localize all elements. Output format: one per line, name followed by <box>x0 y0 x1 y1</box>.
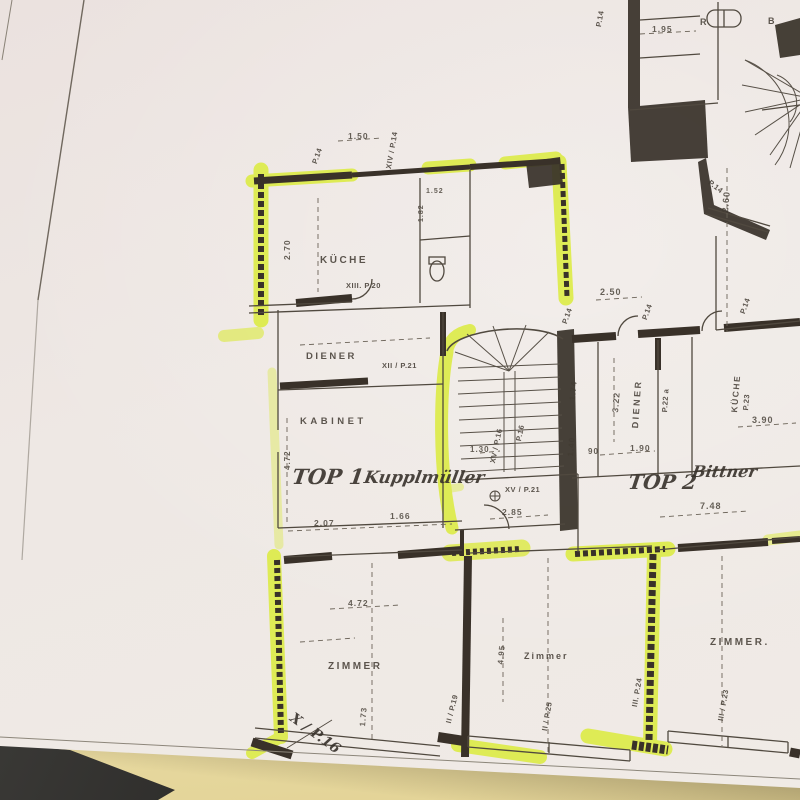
room-label-diener-top1: DIENER <box>306 351 357 362</box>
handwritten-top2: TOP 2 <box>627 470 699 494</box>
dim-140: 1.40 <box>566 436 577 456</box>
dim-174: 1.74 <box>568 380 579 400</box>
handwritten-top1-name: Kupplmüller <box>362 468 486 488</box>
room-number-kueche-top2: P.23 <box>741 394 751 411</box>
room-label-zimmer-left: ZIMMER <box>328 661 382 672</box>
dim-195: 1.95 <box>652 24 673 34</box>
room-number-diener-top1: XII / P.21 <box>382 361 417 370</box>
room-label-kueche-top1: KÜCHE <box>320 255 368 266</box>
dim-152: 1.52 <box>426 188 444 195</box>
photo-scene: KÜCHE XIII. P.20 DIENER XII / P.21 KABIN… <box>0 0 800 800</box>
dim-472: 4.72 <box>348 598 369 608</box>
room-number-kueche-top1: XIII. P.20 <box>346 281 381 290</box>
bath-label: B <box>768 16 775 26</box>
dim-190: 1.90 <box>630 443 651 453</box>
handwritten-top1: TOP 1 <box>290 464 365 489</box>
room-number-diener-top2: P.22 a <box>660 388 671 412</box>
room-label-kabinet: KABINET <box>300 416 367 427</box>
dim-150: 1.50 <box>348 131 369 141</box>
room-label-zimmer-right: ZIMMER. <box>710 637 770 648</box>
dim-495: 4.95 <box>496 644 507 664</box>
room-r-label: R <box>700 17 707 27</box>
floorplan-drawing: KÜCHE XIII. P.20 DIENER XII / P.21 KABIN… <box>0 0 800 800</box>
dim-270: 2.70 <box>282 239 292 260</box>
dim-173: 1.73 <box>358 706 369 726</box>
dim-472-vertical: 4.72 <box>283 450 292 470</box>
room-label-zimmer-mid: Zimmer <box>524 651 569 661</box>
dim-182: 1.82 <box>418 204 425 222</box>
floorplan-linework <box>0 0 800 800</box>
dim-322: 3.22 <box>610 392 622 413</box>
stair-entry-number: XV / P.21 <box>505 485 540 494</box>
handwritten-top2-name: Bittner <box>691 462 759 481</box>
dim-390: 3.90 <box>752 415 774 425</box>
dim-260: 2.60 <box>720 191 732 213</box>
dim-130: 1.30 <box>470 445 490 454</box>
dim-250: 2.50 <box>600 287 622 297</box>
dim-166: 1.66 <box>390 511 411 521</box>
dim-207: 2.07 <box>314 518 335 528</box>
dim-748: 7.48 <box>700 501 722 511</box>
highlighter-marks <box>224 158 800 757</box>
dim-285: 2.85 <box>502 507 523 517</box>
floorplan-paper: KÜCHE XIII. P.20 DIENER XII / P.21 KABIN… <box>0 0 800 800</box>
dim-90: 90 <box>588 447 599 456</box>
